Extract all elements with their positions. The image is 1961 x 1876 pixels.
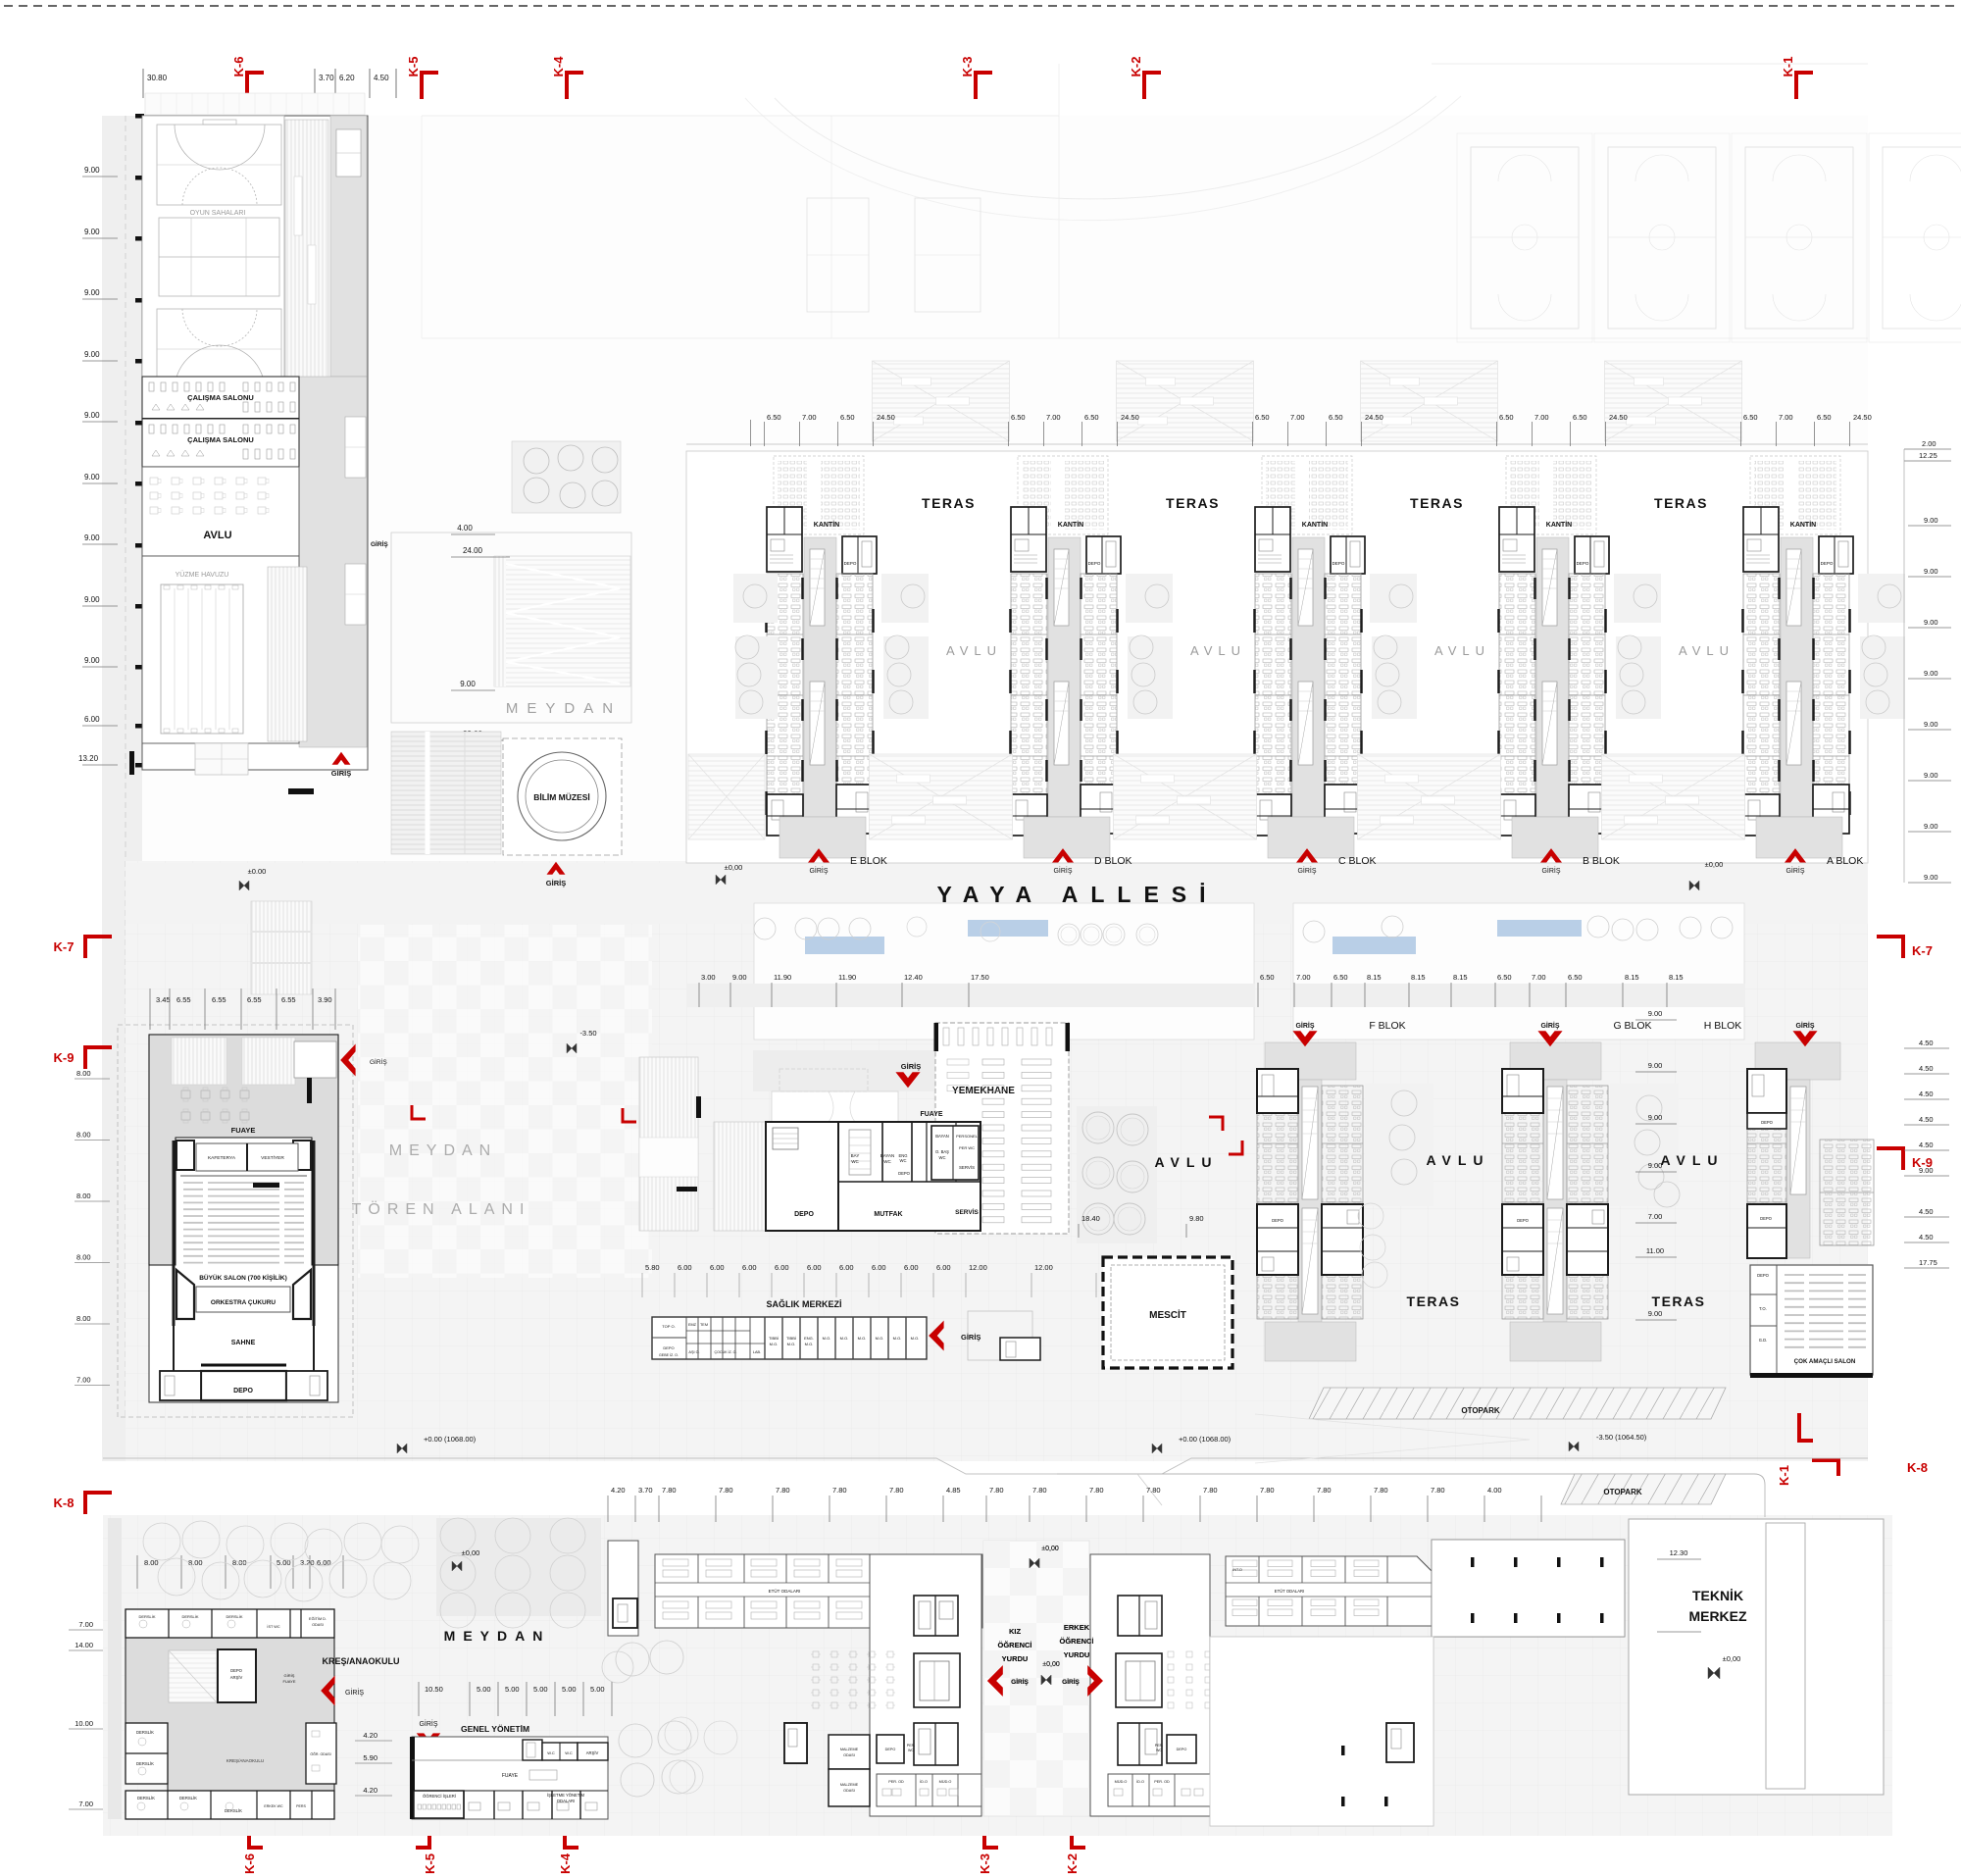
svg-text:TÖREN ALANI: TÖREN ALANI: [352, 1200, 531, 1218]
svg-text:DEPO: DEPO: [1332, 561, 1345, 566]
svg-text:PER.: PER.: [907, 1744, 915, 1748]
svg-text:6.50: 6.50: [1260, 973, 1275, 982]
svg-text:9.00: 9.00: [1648, 1061, 1663, 1070]
svg-text:8.15: 8.15: [1367, 973, 1382, 982]
svg-text:24.50: 24.50: [1365, 413, 1383, 422]
svg-text:4.85: 4.85: [946, 1486, 961, 1495]
svg-text:6.55: 6.55: [212, 995, 226, 1004]
svg-text:9.00: 9.00: [1924, 618, 1938, 627]
svg-text:AVLU: AVLU: [1679, 643, 1735, 658]
svg-text:6.50: 6.50: [1743, 413, 1758, 422]
svg-text:9.00: 9.00: [1648, 1113, 1663, 1122]
svg-text:DEPO: DEPO: [1517, 1218, 1530, 1223]
svg-text:3.45: 3.45: [156, 995, 171, 1004]
svg-text:F BLOK: F BLOK: [1369, 1020, 1405, 1032]
svg-text:6.00: 6.00: [775, 1263, 789, 1272]
svg-text:DERSLİK: DERSLİK: [138, 1614, 155, 1619]
svg-text:BÜYÜK SALON (700 KİŞİLİK): BÜYÜK SALON (700 KİŞİLİK): [199, 1273, 287, 1282]
svg-text:K-7: K-7: [1912, 943, 1933, 958]
svg-text:GİRİŞ: GİRİŞ: [1540, 1022, 1559, 1030]
svg-text:9.00: 9.00: [84, 533, 100, 542]
svg-text:7.80: 7.80: [832, 1486, 847, 1495]
svg-text:7.00: 7.00: [802, 413, 817, 422]
svg-text:MEYDAN: MEYDAN: [506, 700, 622, 717]
svg-text:9.00: 9.00: [1924, 669, 1938, 678]
svg-text:DEPO: DEPO: [1761, 1120, 1774, 1125]
svg-text:İNT.O: İNT.O: [1232, 1567, 1242, 1572]
svg-text:ÇOK AMAÇLI SALON: ÇOK AMAÇLI SALON: [1794, 1358, 1856, 1365]
svg-text:13.20: 13.20: [78, 754, 99, 763]
svg-text:6.00: 6.00: [84, 715, 100, 724]
svg-text:K-4: K-4: [551, 56, 566, 77]
svg-text:İD.O: İD.O: [920, 1779, 928, 1784]
svg-text:+0.00 (1068.00): +0.00 (1068.00): [424, 1435, 477, 1444]
svg-text:TERAS: TERAS: [1654, 495, 1708, 511]
svg-text:8.00: 8.00: [76, 1314, 91, 1323]
svg-text:9.80: 9.80: [1189, 1214, 1204, 1223]
svg-text:8.15: 8.15: [1411, 973, 1426, 982]
svg-text:ENG.: ENG.: [804, 1336, 814, 1341]
svg-text:M.O.: M.O.: [787, 1342, 796, 1346]
svg-text:GİRİŞ: GİRİŞ: [1295, 1022, 1314, 1030]
svg-text:GİRİŞ: GİRİŞ: [901, 1062, 921, 1071]
svg-text:SERVİS: SERVİS: [959, 1165, 975, 1170]
svg-text:M.O.: M.O.: [840, 1336, 849, 1341]
svg-text:M.O.: M.O.: [893, 1336, 902, 1341]
svg-text:GİRİŞ: GİRİŞ: [809, 866, 828, 875]
svg-text:DEPO: DEPO: [1757, 1273, 1770, 1278]
svg-text:DEPO: DEPO: [230, 1668, 243, 1673]
svg-text:4.50: 4.50: [1919, 1039, 1934, 1047]
svg-text:ÖĞRENCİ: ÖĞRENCİ: [1059, 1637, 1093, 1646]
svg-text:KANTİN: KANTİN: [1546, 521, 1572, 529]
svg-text:W.C: W.C: [565, 1750, 573, 1755]
svg-text:6.50: 6.50: [840, 413, 855, 422]
svg-text:±0.00: ±0.00: [248, 867, 267, 876]
svg-text:İST WC: İST WC: [267, 1624, 279, 1629]
svg-text:DEPO: DEPO: [1088, 561, 1101, 566]
svg-text:TERAS: TERAS: [1410, 495, 1464, 511]
svg-text:FUAYE: FUAYE: [920, 1111, 942, 1118]
svg-text:GİRİŞ: GİRİŞ: [1011, 1678, 1029, 1686]
svg-text:GİRİŞ: GİRİŞ: [546, 879, 566, 887]
svg-text:YURDU: YURDU: [1064, 1650, 1090, 1659]
svg-text:YURDU: YURDU: [1002, 1654, 1029, 1663]
svg-text:±0,00: ±0,00: [1042, 1661, 1060, 1668]
svg-text:7.80: 7.80: [1374, 1486, 1388, 1495]
svg-text:9.00: 9.00: [1924, 873, 1938, 882]
svg-text:17.75: 17.75: [1919, 1258, 1937, 1267]
svg-text:KAFETERYA: KAFETERYA: [208, 1155, 236, 1161]
svg-text:KANTİN: KANTİN: [1058, 521, 1083, 529]
svg-text:9.00: 9.00: [1919, 1166, 1934, 1175]
svg-text:11.00: 11.00: [1646, 1246, 1664, 1255]
svg-text:DEPO: DEPO: [844, 561, 857, 566]
svg-text:M.O.: M.O.: [876, 1336, 884, 1341]
svg-text:7.00: 7.00: [1534, 413, 1549, 422]
svg-text:4.20: 4.20: [363, 1786, 377, 1795]
svg-text:7.00: 7.00: [78, 1620, 93, 1629]
svg-text:OTOPARK: OTOPARK: [1461, 1406, 1499, 1415]
svg-text:ÖĞR. ODASI: ÖĞR. ODASI: [310, 1751, 330, 1756]
svg-text:DEPO: DEPO: [233, 1388, 253, 1394]
svg-text:9.00: 9.00: [84, 656, 100, 665]
svg-text:11.90: 11.90: [838, 973, 856, 982]
svg-text:AVLU: AVLU: [1190, 643, 1246, 658]
svg-text:GİRİŞ: GİRİŞ: [1541, 866, 1560, 875]
svg-text:K-8: K-8: [1907, 1460, 1928, 1475]
svg-text:SAĞLIK MERKEZİ: SAĞLIK MERKEZİ: [766, 1298, 841, 1309]
svg-text:DEPO: DEPO: [1821, 561, 1834, 566]
svg-text:İŞLETME YÖNETİM: İŞLETME YÖNETİM: [547, 1793, 585, 1798]
svg-text:BAY: BAY: [851, 1153, 860, 1158]
svg-text:30.80: 30.80: [147, 74, 168, 82]
svg-text:FUAYE: FUAYE: [502, 1773, 519, 1779]
svg-text:K-5: K-5: [406, 57, 421, 77]
svg-text:+0.00 (1068.00): +0.00 (1068.00): [1179, 1435, 1232, 1444]
svg-text:10.00: 10.00: [75, 1719, 93, 1728]
svg-text:9.00: 9.00: [1924, 771, 1938, 780]
svg-text:GİRİŞ: GİRİŞ: [961, 1333, 980, 1342]
svg-text:4.50: 4.50: [1919, 1207, 1934, 1216]
svg-text:M.O.: M.O.: [858, 1336, 867, 1341]
svg-text:4.20: 4.20: [363, 1731, 377, 1740]
svg-text:G BLOK: G BLOK: [1613, 1020, 1651, 1032]
svg-text:DEPO: DEPO: [885, 1748, 896, 1751]
svg-text:±0,00: ±0,00: [1723, 1654, 1741, 1663]
svg-text:7.00: 7.00: [1046, 413, 1061, 422]
svg-text:KANTİN: KANTİN: [814, 521, 839, 529]
svg-text:OYUN SAHALARI: OYUN SAHALARI: [190, 210, 246, 217]
svg-text:5.00: 5.00: [533, 1685, 548, 1694]
svg-text:ÖĞRENCİ İŞLERİ: ÖĞRENCİ İŞLERİ: [423, 1794, 456, 1799]
svg-text:7.00: 7.00: [1648, 1212, 1663, 1221]
svg-text:İD.O: İD.O: [1136, 1779, 1144, 1784]
svg-text:GİRİŞ: GİRİŞ: [419, 1719, 437, 1728]
svg-text:17.50: 17.50: [971, 973, 989, 982]
svg-text:C BLOK: C BLOK: [1338, 855, 1377, 867]
svg-text:6.00: 6.00: [936, 1263, 951, 1272]
svg-text:12.40: 12.40: [904, 973, 923, 982]
svg-text:DEPO: DEPO: [663, 1345, 674, 1350]
svg-text:M.O.: M.O.: [770, 1342, 779, 1346]
svg-text:GİRİŞ: GİRİŞ: [1053, 866, 1072, 875]
svg-text:9.00: 9.00: [84, 288, 100, 297]
svg-text:BAYAN: BAYAN: [935, 1134, 949, 1139]
svg-text:H BLOK: H BLOK: [1704, 1020, 1742, 1032]
svg-text:VESTİYER: VESTİYER: [261, 1154, 284, 1161]
svg-text:-3.50 (1064.50): -3.50 (1064.50): [1596, 1433, 1647, 1442]
svg-text:MEYDAN: MEYDAN: [444, 1628, 551, 1644]
svg-text:AVLU: AVLU: [1154, 1154, 1218, 1170]
svg-text:6.00: 6.00: [839, 1263, 854, 1272]
svg-text:9.00: 9.00: [84, 411, 100, 420]
svg-text:DEPO: DEPO: [794, 1211, 814, 1218]
svg-text:ÇOCUK İZ. O.: ÇOCUK İZ. O.: [715, 1349, 737, 1354]
svg-text:8.00: 8.00: [188, 1558, 203, 1567]
svg-text:ORKESTRA ÇUKURU: ORKESTRA ÇUKURU: [211, 1299, 277, 1306]
svg-text:ODASI: ODASI: [312, 1623, 324, 1627]
svg-text:4.20: 4.20: [611, 1486, 626, 1495]
svg-text:12.00: 12.00: [1034, 1263, 1053, 1272]
svg-text:K-3: K-3: [978, 1853, 992, 1874]
svg-text:YEMEKHANE: YEMEKHANE: [952, 1086, 1015, 1096]
svg-text:EĞİTİM D.: EĞİTİM D.: [309, 1616, 327, 1621]
svg-text:PER. OD: PER. OD: [1154, 1780, 1170, 1784]
svg-text:AVLU: AVLU: [1660, 1152, 1724, 1168]
svg-text:6.50: 6.50: [1333, 973, 1348, 982]
svg-text:WC: WC: [883, 1159, 891, 1164]
svg-text:DEPO: DEPO: [1177, 1748, 1187, 1751]
svg-text:K-2: K-2: [1129, 57, 1143, 77]
svg-text:AŞI O.: AŞI O.: [688, 1350, 699, 1354]
svg-text:6.55: 6.55: [247, 995, 262, 1004]
svg-text:K-1: K-1: [1777, 1465, 1791, 1486]
svg-text:M.O.: M.O.: [911, 1336, 920, 1341]
svg-text:ERKEK: ERKEK: [1064, 1623, 1090, 1632]
svg-text:9.00: 9.00: [84, 166, 100, 175]
svg-text:D BLOK: D BLOK: [1094, 855, 1132, 867]
svg-text:GİRİŞ: GİRİŞ: [1785, 866, 1804, 875]
svg-text:KIZ: KIZ: [1009, 1627, 1022, 1636]
svg-text:ODALARI: ODALARI: [557, 1799, 575, 1803]
svg-text:8.15: 8.15: [1453, 973, 1468, 982]
svg-text:ODASI: ODASI: [843, 1753, 855, 1757]
svg-text:MALZEME: MALZEME: [840, 1748, 859, 1751]
svg-text:MESCİT: MESCİT: [1149, 1308, 1186, 1321]
svg-text:ÇALIŞMA SALONU: ÇALIŞMA SALONU: [187, 393, 254, 402]
svg-text:18.40: 18.40: [1081, 1214, 1100, 1223]
svg-text:AVLU: AVLU: [1434, 643, 1490, 658]
svg-text:7.80: 7.80: [989, 1486, 1004, 1495]
svg-text:GİRİŞ: GİRİŞ: [331, 769, 351, 778]
svg-text:7.80: 7.80: [1089, 1486, 1104, 1495]
svg-text:5.80: 5.80: [645, 1263, 660, 1272]
svg-text:5.00: 5.00: [477, 1685, 491, 1694]
svg-text:6.00: 6.00: [872, 1263, 886, 1272]
svg-text:7.00: 7.00: [1779, 413, 1793, 422]
svg-text:KANTİN: KANTİN: [1302, 521, 1328, 529]
svg-text:MÜD.O: MÜD.O: [1115, 1780, 1128, 1784]
svg-text:5.00: 5.00: [590, 1685, 605, 1694]
svg-text:TERAS: TERAS: [922, 495, 976, 511]
svg-text:K-2: K-2: [1065, 1853, 1080, 1874]
svg-text:24.50: 24.50: [1609, 413, 1628, 422]
svg-text:K-8: K-8: [54, 1496, 75, 1510]
svg-text:6.50: 6.50: [1499, 413, 1514, 422]
svg-text:K-3: K-3: [960, 57, 975, 77]
svg-text:7.80: 7.80: [1146, 1486, 1161, 1495]
svg-text:DERSLİK: DERSLİK: [226, 1614, 242, 1619]
svg-text:3.90: 3.90: [318, 995, 332, 1004]
svg-text:4.50: 4.50: [1919, 1233, 1934, 1242]
svg-text:TERAS: TERAS: [1652, 1293, 1706, 1309]
svg-text:O. BAŞ: O. BAŞ: [935, 1149, 949, 1154]
svg-text:B BLOK: B BLOK: [1583, 855, 1620, 867]
svg-text:7.00: 7.00: [78, 1800, 93, 1808]
svg-text:YÜZME HAVUZU: YÜZME HAVUZU: [176, 571, 229, 579]
svg-text:OTOPARK: OTOPARK: [1603, 1488, 1641, 1496]
svg-text:M.O.: M.O.: [823, 1336, 831, 1341]
svg-text:24.00: 24.00: [463, 546, 483, 555]
svg-text:6.50: 6.50: [1568, 973, 1583, 982]
svg-text:MUTFAK: MUTFAK: [874, 1211, 902, 1218]
svg-text:DERSLİK: DERSLİK: [225, 1808, 242, 1813]
svg-text:PERS: PERS: [296, 1804, 306, 1808]
svg-text:7.80: 7.80: [1431, 1486, 1445, 1495]
svg-text:GİRİŞ: GİRİŞ: [1062, 1678, 1080, 1686]
svg-text:K-6: K-6: [242, 1853, 257, 1874]
svg-text:7.80: 7.80: [662, 1486, 677, 1495]
svg-text:9.00: 9.00: [1648, 1009, 1663, 1018]
svg-text:MEYDAN: MEYDAN: [389, 1142, 497, 1159]
svg-text:AVLU: AVLU: [203, 530, 231, 541]
svg-text:TIBBİ: TIBBİ: [769, 1336, 779, 1341]
svg-text:9.00: 9.00: [1924, 720, 1938, 729]
svg-text:DERSLİK: DERSLİK: [136, 1730, 154, 1735]
svg-text:AVLU: AVLU: [946, 643, 1002, 658]
svg-text:GİRİŞ: GİRİŞ: [345, 1688, 364, 1697]
svg-text:8.00: 8.00: [76, 1069, 91, 1078]
svg-text:6.20: 6.20: [339, 74, 355, 82]
svg-text:G.D.: G.D.: [1759, 1338, 1768, 1343]
svg-text:DEPO: DEPO: [1577, 561, 1589, 566]
svg-text:8.00: 8.00: [76, 1192, 91, 1200]
svg-text:ODASI: ODASI: [843, 1789, 855, 1793]
svg-text:WC: WC: [900, 1158, 907, 1163]
svg-text:4.50: 4.50: [374, 74, 389, 82]
svg-text:7.80: 7.80: [719, 1486, 733, 1495]
svg-text:2.00: 2.00: [1922, 439, 1936, 448]
svg-text:±0,00: ±0,00: [1705, 860, 1724, 869]
svg-text:MERKEZ: MERKEZ: [1688, 1608, 1747, 1624]
svg-text:6.55: 6.55: [281, 995, 296, 1004]
svg-text:GİRİŞ: GİRİŞ: [371, 540, 388, 548]
svg-text:8.15: 8.15: [1625, 973, 1639, 982]
svg-text:9.00: 9.00: [84, 473, 100, 482]
svg-text:PER.: PER.: [1155, 1744, 1163, 1748]
svg-text:ARŞİV: ARŞİV: [230, 1675, 243, 1680]
svg-text:K-1: K-1: [1781, 57, 1795, 77]
svg-text:9.00: 9.00: [84, 228, 100, 236]
svg-text:K-7: K-7: [54, 939, 75, 954]
svg-text:6.50: 6.50: [1497, 973, 1512, 982]
svg-text:FUAYE: FUAYE: [231, 1126, 256, 1135]
svg-text:9.00: 9.00: [84, 350, 100, 359]
svg-text:9.00: 9.00: [1648, 1309, 1663, 1318]
svg-text:GİRİŞ: GİRİŞ: [284, 1673, 295, 1678]
svg-text:TERAS: TERAS: [1407, 1293, 1461, 1309]
svg-text:24.50: 24.50: [877, 413, 895, 422]
svg-text:DERSLİK: DERSLİK: [136, 1761, 154, 1766]
svg-text:SERVİS: SERVİS: [955, 1208, 979, 1216]
svg-text:-3.50: -3.50: [579, 1029, 596, 1038]
svg-text:GEBE İZ. O.: GEBE İZ. O.: [659, 1352, 679, 1357]
svg-text:PERSONEL: PERSONEL: [956, 1134, 979, 1139]
svg-text:9.00: 9.00: [1924, 822, 1938, 831]
svg-text:12.00: 12.00: [969, 1263, 987, 1272]
svg-text:6.50: 6.50: [1573, 413, 1587, 422]
svg-text:WC: WC: [908, 1749, 914, 1752]
svg-text:DERSLİK: DERSLİK: [179, 1796, 197, 1800]
svg-text:4.50: 4.50: [1919, 1115, 1934, 1124]
svg-text:12.30: 12.30: [1670, 1548, 1688, 1557]
svg-text:4.50: 4.50: [1919, 1090, 1934, 1098]
svg-text:GENEL YÖNETİM: GENEL YÖNETİM: [461, 1724, 529, 1734]
svg-text:8.15: 8.15: [1669, 973, 1684, 982]
svg-text:6.50: 6.50: [1329, 413, 1343, 422]
svg-text:DERSLİK: DERSLİK: [137, 1796, 155, 1800]
svg-text:12.25: 12.25: [1919, 451, 1937, 460]
svg-text:9.00: 9.00: [460, 680, 476, 688]
svg-text:TEM: TEM: [700, 1323, 708, 1327]
svg-text:6.50: 6.50: [1817, 413, 1832, 422]
svg-text:6.55: 6.55: [176, 995, 191, 1004]
svg-text:3.70: 3.70: [319, 74, 334, 82]
svg-text:WC: WC: [939, 1155, 946, 1160]
svg-text:11.90: 11.90: [774, 973, 791, 982]
svg-text:EMZ: EMZ: [688, 1323, 697, 1327]
svg-text:WC: WC: [851, 1159, 859, 1164]
svg-text:MÜD.O: MÜD.O: [939, 1780, 952, 1784]
svg-text:ERKEK WC: ERKEK WC: [264, 1804, 283, 1808]
svg-text:KREŞ/ANAOKULU: KREŞ/ANAOKULU: [322, 1656, 399, 1666]
svg-text:7.80: 7.80: [889, 1486, 904, 1495]
svg-text:7.80: 7.80: [776, 1486, 790, 1495]
svg-text:24.50: 24.50: [1121, 413, 1139, 422]
svg-text:GİRİŞ: GİRİŞ: [1795, 1022, 1814, 1030]
svg-text:ÖĞRENCİ: ÖĞRENCİ: [997, 1641, 1031, 1649]
svg-text:10.50: 10.50: [425, 1685, 443, 1694]
svg-text:K-5: K-5: [423, 1853, 437, 1874]
svg-text:7.00: 7.00: [1532, 973, 1546, 982]
svg-text:K-6: K-6: [231, 57, 246, 77]
svg-text:GİRİŞ: GİRİŞ: [370, 1057, 387, 1066]
svg-text:ETÜT ODALARI: ETÜT ODALARI: [1275, 1589, 1304, 1594]
svg-text:5.90: 5.90: [363, 1753, 377, 1762]
svg-text:±0,00: ±0,00: [1041, 1546, 1059, 1552]
svg-text:DEPO: DEPO: [1272, 1218, 1284, 1223]
svg-text:LAB.: LAB.: [753, 1350, 761, 1354]
svg-text:A BLOK: A BLOK: [1827, 855, 1863, 867]
svg-text:9.00: 9.00: [1924, 567, 1938, 576]
svg-text:W.C: W.C: [547, 1750, 555, 1755]
svg-text:6.00: 6.00: [742, 1263, 757, 1272]
svg-text:9.00: 9.00: [1648, 1161, 1663, 1170]
svg-text:M.O.: M.O.: [805, 1342, 814, 1346]
svg-text:GİRİŞ: GİRİŞ: [1297, 866, 1316, 875]
svg-text:6.50: 6.50: [767, 413, 781, 422]
svg-text:ÇALIŞMA SALONU: ÇALIŞMA SALONU: [187, 435, 254, 444]
svg-text:3.00: 3.00: [701, 973, 716, 982]
svg-text:6.00: 6.00: [904, 1263, 919, 1272]
svg-text:9.00: 9.00: [84, 595, 100, 604]
svg-text:E BLOK: E BLOK: [850, 855, 887, 867]
svg-text:ARŞİV: ARŞİV: [586, 1750, 599, 1755]
svg-text:7.00: 7.00: [76, 1376, 91, 1385]
svg-text:TERAS: TERAS: [1166, 495, 1220, 511]
svg-text:24.50: 24.50: [1853, 413, 1872, 422]
svg-text:BİLİM MÜZESİ: BİLİM MÜZESİ: [533, 792, 590, 802]
svg-text:PER WC: PER WC: [959, 1145, 975, 1150]
svg-text:6.50: 6.50: [1011, 413, 1026, 422]
svg-text:SAHNE: SAHNE: [231, 1340, 256, 1346]
svg-text:DEPO: DEPO: [898, 1171, 911, 1176]
svg-text:4.50: 4.50: [1919, 1141, 1934, 1149]
svg-text:6.00: 6.00: [710, 1263, 725, 1272]
svg-text:±0,00: ±0,00: [462, 1548, 480, 1557]
svg-text:6.50: 6.50: [1084, 413, 1099, 422]
